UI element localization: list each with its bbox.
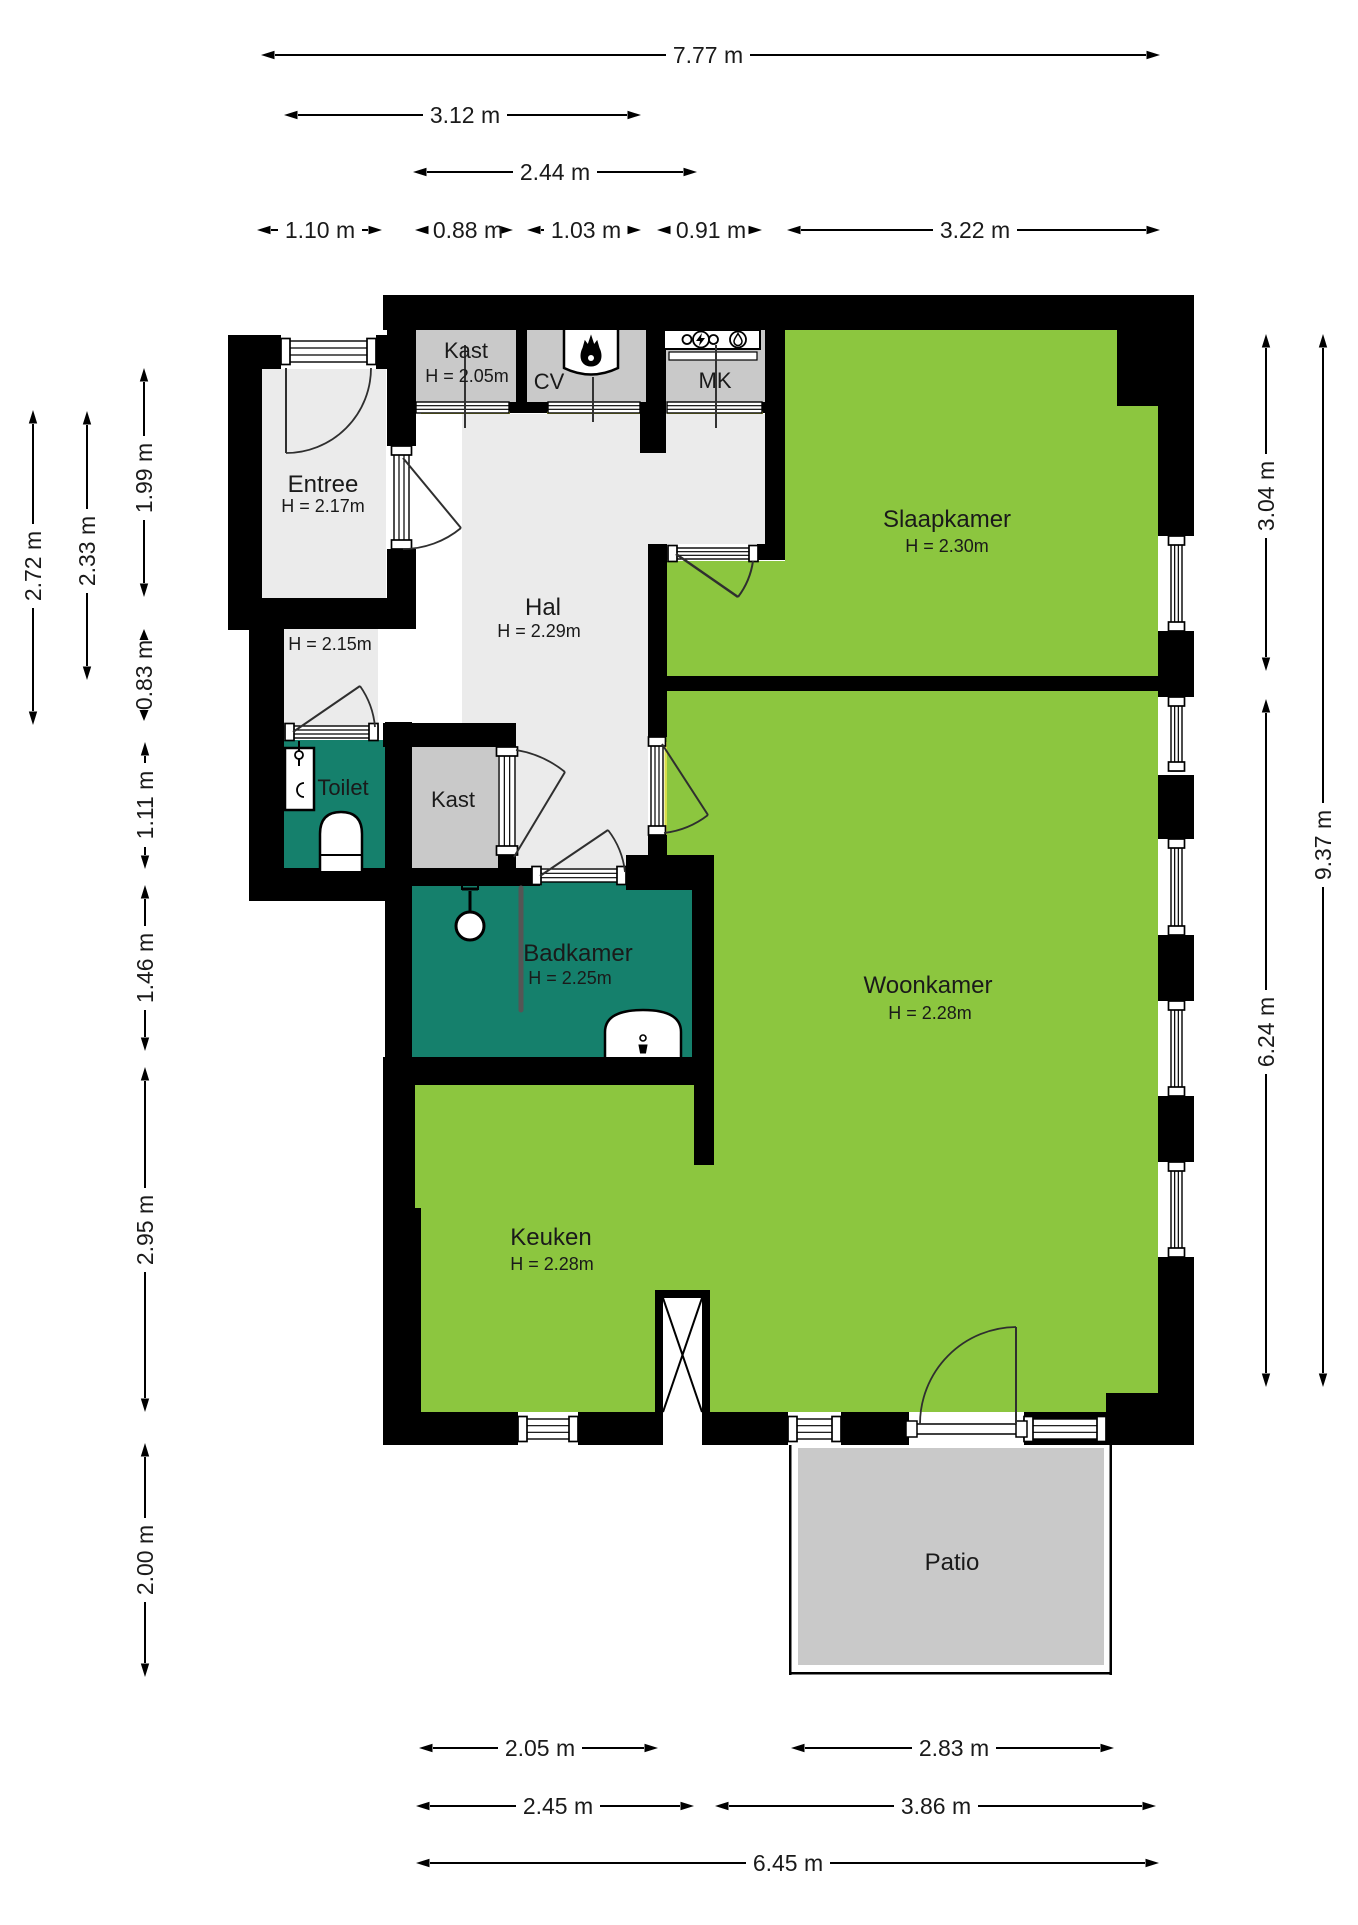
- svg-text:H = 2.05m: H = 2.05m: [425, 366, 509, 386]
- svg-text:H = 2.28m: H = 2.28m: [510, 1254, 594, 1274]
- svg-text:H = 2.29m: H = 2.29m: [497, 621, 581, 641]
- svg-text:1.11 m: 1.11 m: [132, 771, 158, 840]
- svg-text:H = 2.15m: H = 2.15m: [288, 634, 372, 654]
- svg-text:2.33 m: 2.33 m: [74, 516, 100, 586]
- svg-text:MK: MK: [699, 368, 732, 393]
- svg-text:3.04 m: 3.04 m: [1253, 461, 1279, 531]
- svg-text:1.10 m: 1.10 m: [285, 217, 355, 243]
- svg-text:H = 2.17m: H = 2.17m: [281, 496, 365, 516]
- svg-text:2.00 m: 2.00 m: [132, 1525, 158, 1595]
- svg-text:2.95 m: 2.95 m: [132, 1195, 158, 1265]
- svg-text:1.03 m: 1.03 m: [551, 217, 621, 243]
- svg-text:3.12 m: 3.12 m: [430, 102, 500, 128]
- svg-text:2.05 m: 2.05 m: [505, 1735, 575, 1761]
- svg-text:1.46 m: 1.46 m: [132, 933, 158, 1003]
- svg-text:6.24 m: 6.24 m: [1253, 997, 1279, 1067]
- svg-text:6.45 m: 6.45 m: [753, 1850, 823, 1876]
- svg-text:Woonkamer: Woonkamer: [864, 972, 993, 999]
- svg-text:H = 2.30m: H = 2.30m: [905, 536, 989, 556]
- svg-text:CV: CV: [534, 369, 565, 394]
- svg-text:Patio: Patio: [925, 1549, 980, 1576]
- svg-text:0.88 m: 0.88 m: [433, 217, 503, 243]
- svg-text:2.83 m: 2.83 m: [919, 1735, 989, 1761]
- svg-text:2.44 m: 2.44 m: [520, 159, 590, 185]
- svg-text:2.45 m: 2.45 m: [523, 1793, 593, 1819]
- svg-text:Slaapkamer: Slaapkamer: [883, 506, 1011, 533]
- svg-text:2.72 m: 2.72 m: [20, 531, 46, 601]
- svg-text:3.22 m: 3.22 m: [940, 217, 1010, 243]
- svg-text:H = 2.28m: H = 2.28m: [888, 1003, 972, 1023]
- svg-text:1.99 m: 1.99 m: [131, 443, 157, 513]
- svg-text:Hal: Hal: [525, 594, 561, 621]
- svg-text:7.77 m: 7.77 m: [673, 42, 743, 68]
- svg-text:9.37 m: 9.37 m: [1310, 810, 1336, 880]
- svg-text:3.86 m: 3.86 m: [901, 1793, 971, 1819]
- svg-text:Kast: Kast: [444, 338, 488, 363]
- svg-text:H = 2.25m: H = 2.25m: [528, 968, 612, 988]
- svg-text:Toilet: Toilet: [317, 775, 368, 800]
- svg-text:Entree: Entree: [288, 471, 359, 498]
- svg-text:0.91 m: 0.91 m: [676, 217, 746, 243]
- svg-text:Keuken: Keuken: [510, 1224, 591, 1251]
- svg-text:Kast: Kast: [431, 787, 475, 812]
- svg-text:Badkamer: Badkamer: [523, 940, 632, 967]
- svg-text:0.83 m: 0.83 m: [131, 640, 157, 710]
